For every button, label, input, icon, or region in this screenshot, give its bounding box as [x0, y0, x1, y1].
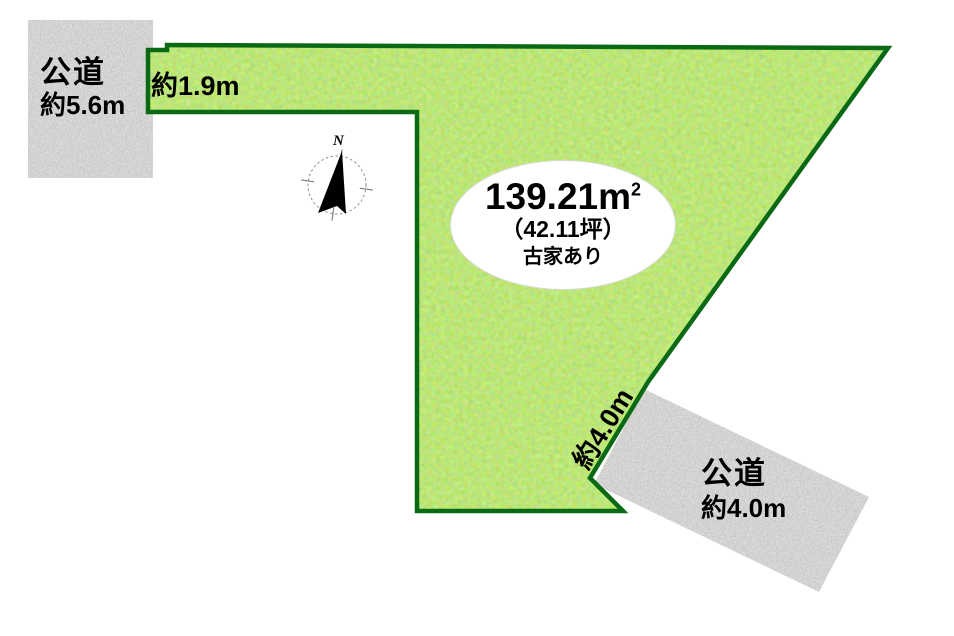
area-square-meters: 139.21m2: [485, 178, 641, 215]
southeast-road-name: 公道: [701, 457, 786, 491]
plot-diagram-canvas: N 公道 約5.6m 約1.9m 139.21m2 （42.11坪） 古家あり …: [0, 0, 954, 636]
plot-map: [0, 0, 954, 636]
compass-north-label: N: [333, 133, 344, 150]
west-road-label: 公道 約5.6m: [40, 55, 125, 121]
west-road-width: 約5.6m: [40, 91, 125, 121]
southeast-road-label: 公道 約4.0m: [701, 457, 786, 523]
frontage-north-dimension: 約1.9m: [151, 64, 240, 103]
area-superscript: 2: [631, 180, 641, 200]
area-tsubo: （42.11坪）: [500, 215, 625, 244]
west-road-name: 公道: [40, 55, 125, 91]
old-house-note: 古家あり: [523, 244, 603, 270]
area-ellipse: 139.21m2 （42.11坪） 古家あり: [450, 160, 676, 290]
southeast-road-width: 約4.0m: [701, 494, 786, 523]
